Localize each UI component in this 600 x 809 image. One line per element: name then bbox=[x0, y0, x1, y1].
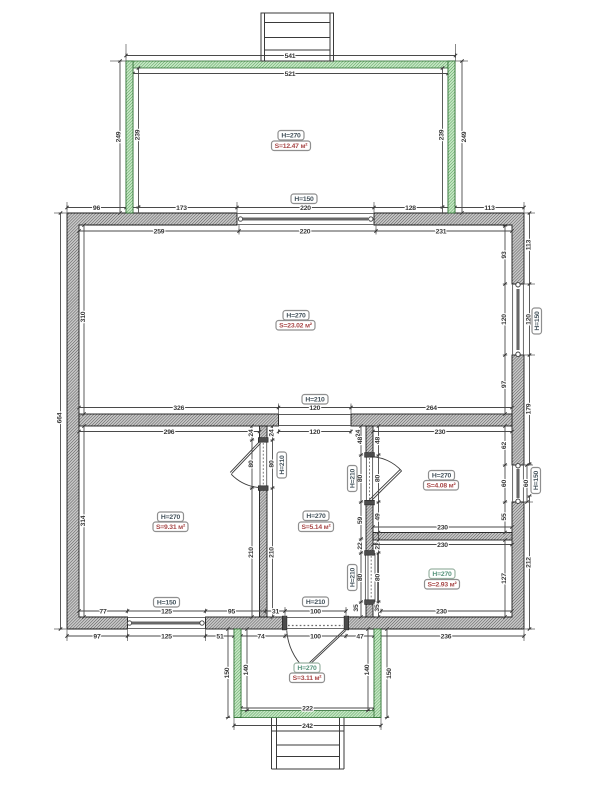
svg-text:S=3.11 м²: S=3.11 м² bbox=[293, 675, 323, 682]
svg-text:93: 93 bbox=[501, 251, 508, 259]
svg-text:230: 230 bbox=[437, 525, 448, 532]
svg-text:80: 80 bbox=[357, 475, 364, 483]
svg-text:95: 95 bbox=[228, 609, 236, 616]
svg-text:249: 249 bbox=[116, 131, 123, 142]
svg-text:222: 222 bbox=[302, 706, 313, 713]
svg-text:179: 179 bbox=[526, 403, 533, 414]
svg-text:48: 48 bbox=[357, 437, 364, 445]
svg-text:664: 664 bbox=[57, 412, 64, 423]
svg-text:120: 120 bbox=[309, 405, 320, 412]
svg-text:239: 239 bbox=[135, 129, 142, 140]
svg-text:H=150: H=150 bbox=[533, 470, 540, 490]
svg-text:35: 35 bbox=[353, 604, 360, 612]
svg-text:173: 173 bbox=[176, 205, 187, 212]
svg-text:140: 140 bbox=[364, 664, 371, 675]
svg-text:77: 77 bbox=[99, 609, 107, 616]
svg-text:125: 125 bbox=[161, 634, 172, 641]
svg-text:31: 31 bbox=[272, 609, 280, 616]
svg-text:H=210: H=210 bbox=[306, 599, 326, 606]
svg-text:100: 100 bbox=[310, 609, 321, 616]
svg-text:314: 314 bbox=[80, 515, 87, 526]
svg-text:22: 22 bbox=[357, 542, 364, 550]
svg-text:296: 296 bbox=[164, 429, 175, 436]
svg-text:H=150: H=150 bbox=[157, 600, 177, 607]
svg-text:80: 80 bbox=[357, 574, 364, 582]
svg-text:22: 22 bbox=[375, 542, 382, 550]
svg-text:H=270: H=270 bbox=[286, 313, 306, 320]
svg-text:128: 128 bbox=[405, 205, 416, 212]
svg-text:H=270: H=270 bbox=[297, 665, 317, 672]
svg-text:150: 150 bbox=[386, 668, 393, 679]
svg-text:S=9.31 м²: S=9.31 м² bbox=[156, 524, 186, 531]
svg-text:H=270: H=270 bbox=[432, 473, 452, 480]
svg-text:230: 230 bbox=[436, 609, 447, 616]
svg-text:120: 120 bbox=[309, 429, 320, 436]
svg-text:541: 541 bbox=[285, 53, 296, 60]
svg-text:H=270: H=270 bbox=[306, 513, 326, 520]
svg-text:55: 55 bbox=[501, 513, 508, 521]
svg-text:212: 212 bbox=[526, 557, 533, 568]
svg-text:H=150: H=150 bbox=[534, 311, 541, 331]
svg-text:S=12.47 м²: S=12.47 м² bbox=[275, 143, 309, 150]
svg-text:H=210: H=210 bbox=[279, 455, 286, 475]
svg-text:80: 80 bbox=[269, 460, 276, 468]
svg-text:230: 230 bbox=[437, 542, 448, 549]
svg-text:80: 80 bbox=[375, 574, 382, 582]
svg-text:80: 80 bbox=[375, 475, 382, 483]
svg-text:220: 220 bbox=[300, 229, 311, 236]
svg-text:S=23.02 м²: S=23.02 м² bbox=[279, 323, 313, 330]
svg-text:96: 96 bbox=[93, 205, 101, 212]
svg-text:220: 220 bbox=[300, 205, 311, 212]
svg-text:59: 59 bbox=[357, 517, 364, 525]
svg-text:62: 62 bbox=[501, 442, 508, 450]
svg-text:120: 120 bbox=[501, 314, 508, 325]
svg-text:231: 231 bbox=[436, 229, 447, 236]
svg-text:97: 97 bbox=[501, 381, 508, 389]
svg-text:48: 48 bbox=[375, 437, 382, 445]
svg-text:310: 310 bbox=[80, 311, 87, 322]
svg-text:140: 140 bbox=[243, 664, 250, 675]
svg-text:521: 521 bbox=[285, 71, 296, 78]
svg-text:113: 113 bbox=[526, 239, 533, 250]
svg-text:127: 127 bbox=[501, 573, 508, 584]
svg-text:35: 35 bbox=[374, 604, 381, 612]
svg-text:249: 249 bbox=[461, 131, 468, 142]
svg-text:H=210: H=210 bbox=[305, 397, 325, 404]
svg-text:236: 236 bbox=[441, 634, 452, 641]
svg-text:100: 100 bbox=[310, 634, 321, 641]
svg-text:125: 125 bbox=[161, 609, 172, 616]
svg-text:210: 210 bbox=[269, 547, 276, 558]
svg-text:150: 150 bbox=[224, 667, 231, 678]
svg-text:H=150: H=150 bbox=[294, 196, 314, 203]
svg-text:24: 24 bbox=[269, 429, 276, 437]
svg-text:49: 49 bbox=[375, 513, 382, 521]
svg-text:326: 326 bbox=[173, 405, 184, 412]
svg-text:47: 47 bbox=[356, 634, 364, 641]
svg-text:74: 74 bbox=[257, 634, 265, 641]
svg-text:60: 60 bbox=[501, 480, 508, 488]
svg-text:H=210: H=210 bbox=[350, 468, 357, 488]
svg-text:H=270: H=270 bbox=[281, 133, 301, 140]
svg-text:51: 51 bbox=[216, 634, 224, 641]
svg-text:S=4.08 м²: S=4.08 м² bbox=[426, 483, 456, 490]
svg-text:S=2.93 м²: S=2.93 м² bbox=[427, 582, 457, 589]
svg-text:60: 60 bbox=[523, 480, 530, 488]
svg-text:97: 97 bbox=[93, 634, 101, 641]
svg-text:H=210: H=210 bbox=[350, 567, 357, 587]
svg-text:210: 210 bbox=[248, 547, 255, 558]
svg-text:259: 259 bbox=[154, 229, 165, 236]
svg-text:239: 239 bbox=[439, 129, 446, 140]
svg-text:113: 113 bbox=[484, 205, 495, 212]
svg-text:H=270: H=270 bbox=[432, 571, 452, 578]
svg-text:242: 242 bbox=[302, 723, 313, 730]
svg-text:S=5.14 м²: S=5.14 м² bbox=[301, 524, 331, 531]
svg-text:230: 230 bbox=[435, 429, 446, 436]
svg-text:H=270: H=270 bbox=[161, 514, 181, 521]
svg-text:24: 24 bbox=[248, 429, 255, 437]
svg-text:264: 264 bbox=[426, 405, 437, 412]
svg-text:80: 80 bbox=[248, 460, 255, 468]
